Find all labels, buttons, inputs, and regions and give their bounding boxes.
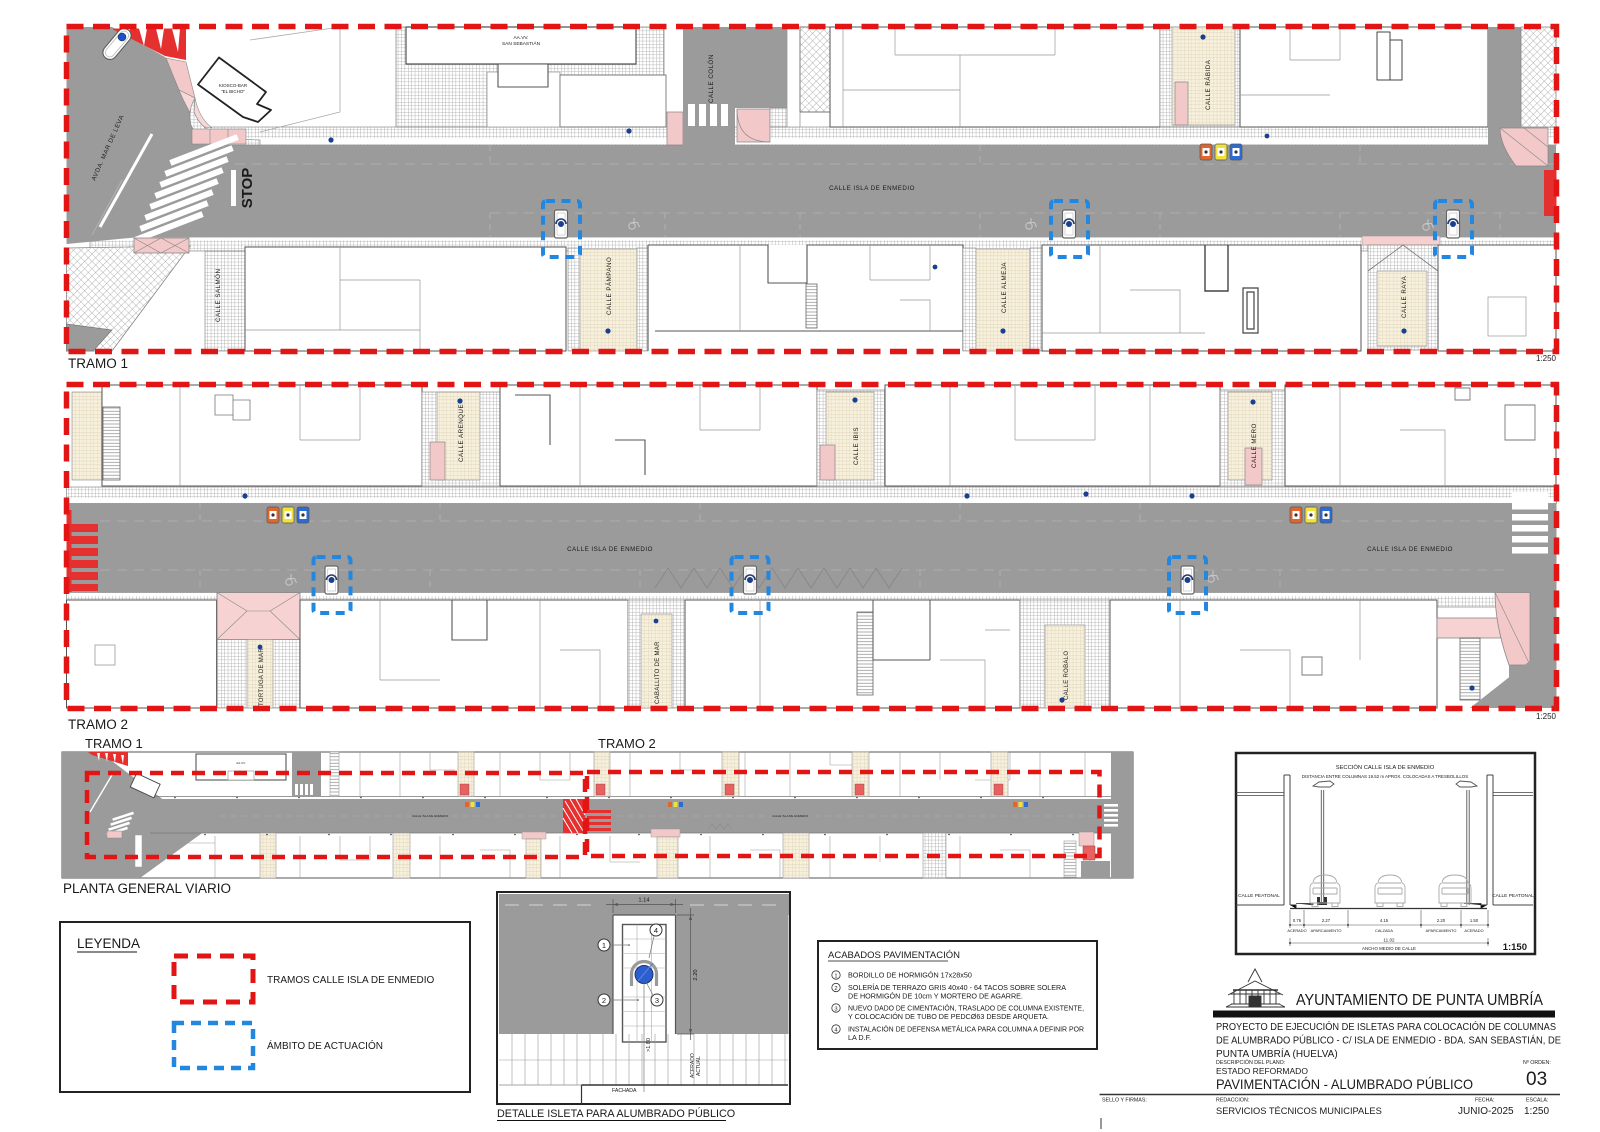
svg-text:DETALLE ISLETA PARA ALUMBRADO: DETALLE ISLETA PARA ALUMBRADO PÚBLICO (497, 1107, 735, 1120)
svg-text:CALLE ISLA DE ENMEDIO: CALLE ISLA DE ENMEDIO (829, 185, 915, 192)
svg-text:CALLE ROBALO: CALLE ROBALO (1064, 651, 1070, 700)
svg-text:Y COLOCACIÓN DE TUBO DE PEDCØ6: Y COLOCACIÓN DE TUBO DE PEDCØ63 DESDE AR… (848, 1012, 1049, 1021)
svg-text:CALLE IBIS: CALLE IBIS (853, 427, 860, 465)
svg-text:1: 1 (834, 973, 837, 979)
svg-text:CABALLITO DE MAR: CABALLITO DE MAR (655, 641, 661, 704)
svg-text:PROYECTO DE EJECUCIÓN DE ISLET: PROYECTO DE EJECUCIÓN DE ISLETAS PARA CO… (1216, 1020, 1556, 1033)
svg-text:3: 3 (655, 996, 659, 1005)
svg-text:REDACCION:: REDACCION: (1216, 1098, 1249, 1104)
svg-text:CALLE ISLA DE ENMEDIO: CALLE ISLA DE ENMEDIO (1367, 546, 1453, 553)
svg-text:CALLE COLÓN: CALLE COLÓN (708, 54, 715, 103)
svg-text:TRAMO 1: TRAMO 1 (85, 736, 143, 751)
svg-text:1: 1 (602, 941, 606, 950)
svg-text:1:150: 1:150 (1503, 942, 1527, 953)
svg-text:2: 2 (834, 986, 837, 992)
svg-text:SELLO Y FIRMAS:: SELLO Y FIRMAS: (1102, 1098, 1147, 1104)
svg-text:ACABADOS PAVIMENTACIÓN: ACABADOS PAVIMENTACIÓN (828, 950, 960, 961)
svg-text:ACERADO: ACERADO (1464, 928, 1483, 933)
svg-text:TRAMO 2: TRAMO 2 (68, 717, 128, 732)
svg-text:LEYENDA: LEYENDA (77, 936, 140, 951)
svg-text:TORTUGA DE MAR: TORTUGA DE MAR (259, 648, 265, 706)
svg-text:>1.80: >1.80 (646, 1038, 652, 1052)
svg-text:ÁMBITO DE ACTUACIÓN: ÁMBITO DE ACTUACIÓN (267, 1039, 383, 1052)
svg-text:CALLE SALMÓN: CALLE SALMÓN (215, 269, 222, 322)
svg-text:SAN SEBASTIÁN: SAN SEBASTIÁN (502, 40, 541, 47)
svg-text:2: 2 (602, 996, 606, 1005)
svg-text:AYUNTAMIENTO DE PUNTA UMBRÍA: AYUNTAMIENTO DE PUNTA UMBRÍA (1296, 992, 1544, 1009)
svg-text:APARCAMIENTO: APARCAMIENTO (1311, 928, 1342, 933)
svg-text:DE HORMIGÓN DE 10cm Y MORTERO: DE HORMIGÓN DE 10cm Y MORTERO DE AGARRE. (848, 992, 1023, 1001)
svg-text:11.02: 11.02 (1383, 938, 1395, 943)
svg-text:2.20: 2.20 (693, 969, 699, 980)
svg-text:"EL BICHO": "EL BICHO" (221, 89, 245, 94)
svg-text:CALLE PÁMPANO: CALLE PÁMPANO (606, 257, 613, 315)
svg-text:FECHA:: FECHA: (1475, 1098, 1494, 1104)
svg-text:DISTANCIA ENTRE COLUMNAS 19.52: DISTANCIA ENTRE COLUMNAS 19.52 m APROX. … (1302, 774, 1468, 779)
svg-text:CALLE RÁBIDA: CALLE RÁBIDA (1205, 59, 1212, 110)
svg-text:CALLE ALMEJA: CALLE ALMEJA (1001, 262, 1008, 313)
svg-text:AA.VV.: AA.VV. (236, 761, 246, 765)
svg-text:PUNTA UMBRÍA (HUELVA): PUNTA UMBRÍA (HUELVA) (1216, 1047, 1338, 1060)
svg-text:1:250: 1:250 (1536, 712, 1557, 721)
svg-text:DE ALUMBRADO PÚBLICO - C/ ISLA: DE ALUMBRADO PÚBLICO - C/ ISLA DE ENMEDI… (1216, 1034, 1561, 1047)
svg-text:ACTUAL: ACTUAL (696, 1056, 702, 1076)
svg-text:ESTADO REFORMADO: ESTADO REFORMADO (1216, 1066, 1308, 1076)
svg-text:TRAMO 1: TRAMO 1 (68, 356, 128, 371)
svg-text:ESCALA:: ESCALA: (1526, 1098, 1548, 1104)
svg-text:2.27: 2.27 (1322, 918, 1331, 923)
svg-text:KIOSCO-BAR: KIOSCO-BAR (219, 83, 248, 88)
svg-text:AA.VV.: AA.VV. (513, 35, 528, 41)
svg-text:4.15: 4.15 (1380, 918, 1389, 923)
svg-text:INSTALACIÓN DE DEFENSA METÁLIC: INSTALACIÓN DE DEFENSA METÁLICA PARA COL… (848, 1025, 1084, 1034)
svg-text:CALLE ARENQUE: CALLE ARENQUE (458, 404, 465, 462)
svg-text:CALLE ISLA DE ENMEDIO: CALLE ISLA DE ENMEDIO (567, 546, 653, 553)
svg-text:CALLE PEATONAL: CALLE PEATONAL (1492, 893, 1534, 899)
svg-text:0.76: 0.76 (1293, 918, 1302, 923)
svg-text:SECCIÓN CALLE ISLA DE ENMEDIO: SECCIÓN CALLE ISLA DE ENMEDIO (1336, 764, 1435, 771)
svg-text:FACHADA: FACHADA (612, 1088, 637, 1094)
svg-text:STOP: STOP (239, 168, 256, 209)
svg-text:Nº ORDEN:: Nº ORDEN: (1523, 1060, 1551, 1066)
svg-text:1.14: 1.14 (638, 898, 650, 904)
svg-text:CALLE ISLA DE ENMEDIO: CALLE ISLA DE ENMEDIO (772, 814, 809, 818)
svg-text:4: 4 (654, 926, 658, 935)
svg-text:CALLE RAYA: CALLE RAYA (1401, 275, 1408, 318)
svg-text:CALLE PEATONAL: CALLE PEATONAL (1238, 893, 1280, 899)
svg-text:APARCAMIENTO: APARCAMIENTO (1426, 928, 1457, 933)
svg-text:3: 3 (834, 1006, 837, 1012)
svg-text:1:250: 1:250 (1536, 354, 1557, 363)
svg-text:1:250: 1:250 (1524, 1106, 1549, 1117)
svg-text:ACERADO: ACERADO (1287, 928, 1306, 933)
svg-text:JUNIO-2025: JUNIO-2025 (1458, 1106, 1514, 1117)
svg-text:PAVIMENTACIÓN - ALUMBRADO PÚBL: PAVIMENTACIÓN - ALUMBRADO PÚBLICO (1216, 1076, 1473, 1092)
svg-text:CALZADA: CALZADA (1375, 928, 1393, 933)
svg-text:CALLE MERO: CALLE MERO (1251, 423, 1258, 468)
svg-text:SERVICIOS TÉCNICOS MUNICIPALES: SERVICIOS TÉCNICOS MUNICIPALES (1216, 1106, 1382, 1116)
svg-text:LA D.F.: LA D.F. (848, 1033, 871, 1042)
svg-text:CALLE ISLA DE ENMEDIO: CALLE ISLA DE ENMEDIO (412, 814, 449, 818)
svg-text:DESCRIPCIÓN DEL PLANO:: DESCRIPCIÓN DEL PLANO: (1216, 1059, 1285, 1066)
svg-text:1.50: 1.50 (1470, 918, 1479, 923)
svg-text:TRAMO 2: TRAMO 2 (598, 736, 656, 751)
svg-text:TRAMOS CALLE ISLA DE ENMEDIO: TRAMOS CALLE ISLA DE ENMEDIO (267, 975, 434, 986)
svg-text:03: 03 (1526, 1069, 1547, 1090)
svg-text:ANCHO MEDIO DE CALLE: ANCHO MEDIO DE CALLE (1362, 946, 1416, 951)
svg-text:PLANTA GENERAL VIARIO: PLANTA GENERAL VIARIO (63, 881, 231, 896)
svg-text:2.20: 2.20 (1437, 918, 1446, 923)
svg-text:BORDILLO DE HORMIGÓN 17x28x50: BORDILLO DE HORMIGÓN 17x28x50 (848, 971, 972, 980)
